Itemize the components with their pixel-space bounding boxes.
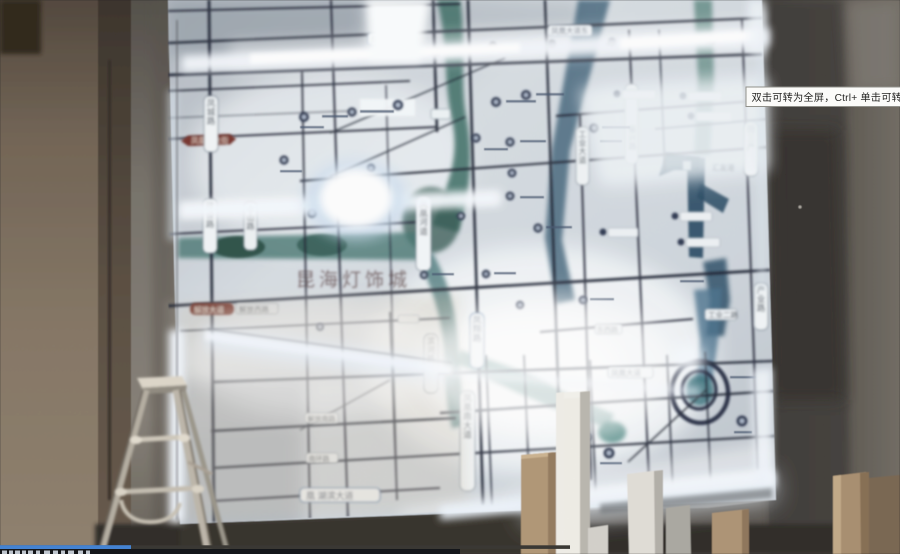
svg-text:双击可转为全屏，Ctrl+ 单击可转为: 双击可转为全屏，Ctrl+ 单击可转为: [752, 91, 900, 104]
